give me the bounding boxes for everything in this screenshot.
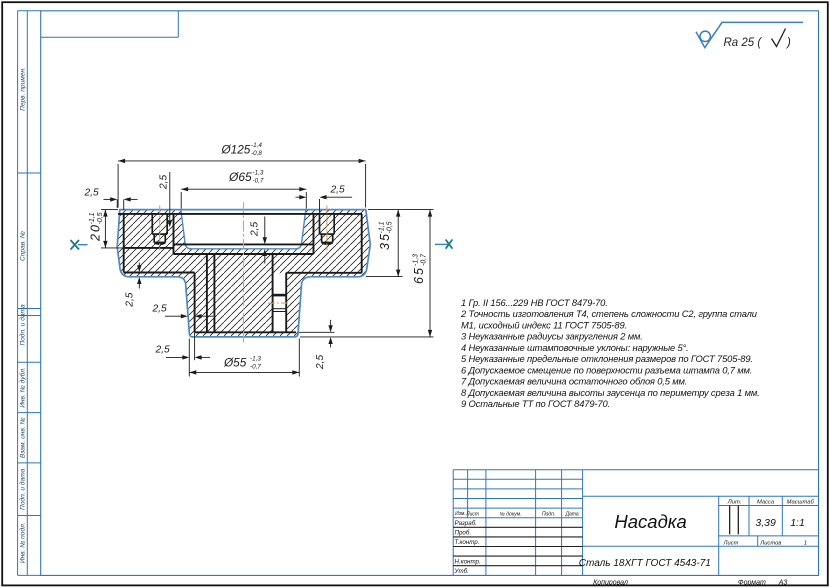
svg-text:8 Допускаемая величина высоты: 8 Допускаемая величина высоты заусенца п… (461, 387, 760, 398)
svg-text:2,5: 2,5 (159, 175, 170, 190)
svg-text:Подп. и дата: Подп. и дата (19, 304, 27, 346)
svg-text:2,5: 2,5 (84, 188, 99, 199)
svg-text:Листов: Листов (759, 540, 781, 546)
svg-text:3,39: 3,39 (755, 517, 776, 529)
svg-text:Разраб.: Разраб. (455, 520, 477, 527)
svg-text:-1,1: -1,1 (89, 212, 96, 224)
svg-text:3 Неуказанные радиусы закругл: 3 Неуказанные радиусы закругления 2 мм. (461, 331, 643, 342)
svg-text:Масштаб: Масштаб (787, 500, 815, 506)
svg-text:-1,3: -1,3 (413, 254, 420, 266)
svg-text:Н.контр.: Н.контр. (455, 558, 481, 565)
svg-text:2,5: 2,5 (330, 185, 345, 196)
svg-text:Копировал: Копировал (593, 579, 628, 586)
svg-text:Насадка: Насадка (614, 511, 686, 532)
svg-text:Подп. и дата: Подп. и дата (19, 468, 27, 510)
svg-text:Ø55: Ø55 (223, 356, 247, 370)
svg-text:2 Точность изготовления Т4, с: 2 Точность изготовления Т4, степень слож… (460, 308, 758, 319)
svg-text:1 Гр. II 156...229 НВ ГОСТ 847: 1 Гр. II 156...229 НВ ГОСТ 8479-70. (461, 297, 608, 308)
svg-text:1: 1 (804, 540, 807, 546)
svg-text:Инв. № дубл.: Инв. № дубл. (19, 367, 27, 408)
svg-text:2,5: 2,5 (315, 355, 326, 370)
svg-text:Изм.: Изм. (455, 511, 466, 517)
svg-text:7 Допускаемая величина остато: 7 Допускаемая величина остаточного облоя… (461, 376, 687, 387)
svg-text:Т.контр.: Т.контр. (455, 539, 480, 546)
svg-text:Формат: Формат (738, 579, 766, 586)
svg-text:Справ. №: Справ. № (20, 231, 27, 261)
svg-text:Проб.: Проб. (455, 530, 472, 537)
svg-text:2,5: 2,5 (152, 304, 167, 315)
svg-text:Ra 25 (: Ra 25 ( (724, 37, 763, 49)
svg-text:-1,1: -1,1 (379, 221, 386, 233)
svg-text:2,5: 2,5 (250, 222, 261, 237)
svg-text:-0,5: -0,5 (97, 212, 104, 224)
svg-text:Инв. № подл.: Инв. № подл. (19, 522, 27, 563)
svg-text:6 Допускаемое смещение по пов: 6 Допускаемое смещение по поверхности ра… (461, 364, 752, 375)
svg-text:-0,7: -0,7 (253, 177, 264, 184)
svg-text:Ø65: Ø65 (228, 170, 252, 184)
svg-text:Лит.: Лит. (727, 500, 742, 506)
svg-text:-0,7: -0,7 (421, 253, 428, 266)
svg-text:Лист: Лист (723, 540, 739, 546)
svg-text:№ докум.: № докум. (499, 511, 521, 517)
svg-text:-0,5: -0,5 (387, 221, 394, 233)
svg-text:М1, исходный индекс 11 ГОСТ 75: М1, исходный индекс 11 ГОСТ 7505-89. (461, 319, 627, 330)
svg-text:-0,7: -0,7 (250, 363, 261, 370)
svg-text:65: 65 (412, 266, 426, 284)
svg-text:9 Остальные ТТ по ГОСТ 8479-7: 9 Остальные ТТ по ГОСТ 8479-70. (461, 398, 610, 409)
svg-text:1:1: 1:1 (790, 517, 805, 529)
svg-text:Перв. примен.: Перв. примен. (20, 67, 27, 111)
svg-text:20: 20 (89, 223, 103, 242)
svg-text:Лист: Лист (465, 511, 479, 517)
svg-text:35: 35 (378, 232, 392, 250)
svg-text:4 Неуказанные штамповочные ук: 4 Неуказанные штамповочные уклоны: наруж… (461, 342, 689, 353)
svg-text:-1,4: -1,4 (251, 142, 262, 149)
svg-text:Подп.: Подп. (542, 511, 555, 517)
svg-text:Утб.: Утб. (454, 568, 469, 575)
svg-text:-1,3: -1,3 (253, 170, 264, 177)
svg-text:Масса: Масса (757, 500, 775, 506)
svg-text:Ø125: Ø125 (221, 143, 251, 157)
svg-text:2,5: 2,5 (125, 292, 136, 307)
svg-text:Взам. инв. №: Взам. инв. № (20, 417, 27, 458)
svg-text:2,5: 2,5 (155, 345, 170, 356)
svg-text:Сталь 18ХГТ ГОСТ 4543-71: Сталь 18ХГТ ГОСТ 4543-71 (579, 558, 711, 569)
svg-text:5 Неуказанные предельные откл: 5 Неуказанные предельные отклонения разм… (461, 353, 753, 364)
svg-text:-0,8: -0,8 (251, 150, 262, 157)
svg-text:-1,3: -1,3 (250, 356, 261, 363)
svg-text:Дата: Дата (564, 511, 578, 517)
svg-text:А3: А3 (778, 579, 788, 586)
